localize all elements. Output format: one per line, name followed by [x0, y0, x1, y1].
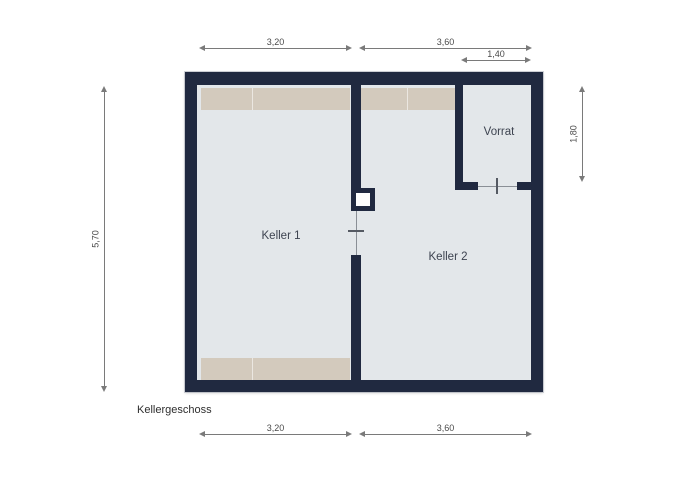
door-opening-keller — [351, 211, 361, 255]
shelf-divider — [252, 88, 253, 110]
dimension-line — [104, 91, 105, 387]
dimension-line — [466, 60, 526, 61]
dimension-left-height: 5,70 — [101, 86, 108, 392]
room-label-keller2: Keller 2 — [388, 251, 508, 264]
dimension-line — [364, 434, 527, 435]
dimension-value: 3,60 — [437, 38, 455, 47]
shelf-strip-top-keller1 — [201, 88, 350, 110]
door-tick-mark — [496, 178, 498, 194]
partition-wall-lower — [351, 255, 361, 392]
floor-title: Kellergeschoss — [137, 404, 212, 417]
dimension-value: 3,60 — [437, 424, 455, 433]
shelf-divider — [252, 358, 253, 380]
dimension-value: 5,70 — [92, 230, 101, 248]
door-opening-vorrat — [478, 182, 517, 190]
floor-plan-page: Keller 1 Keller 2 Vorrat 3,20 3,60 1,40 … — [0, 0, 680, 480]
shelf-divider — [407, 88, 408, 110]
dimension-bottom-keller1-width: 3,20 — [199, 431, 352, 438]
vorrat-wall-bottom-right — [517, 182, 531, 190]
shelf-strip-top-keller2 — [361, 88, 455, 110]
dimension-value: 3,20 — [267, 424, 285, 433]
door-leaf-line — [356, 211, 357, 255]
dimension-value: 1,40 — [487, 50, 505, 59]
dimension-top-keller1-width: 3,20 — [199, 45, 352, 52]
dimension-vorrat-height: 1,80 — [579, 86, 586, 182]
dimension-line — [582, 91, 583, 177]
vorrat-wall-bottom-left — [455, 182, 478, 190]
door-tick-mark — [348, 230, 364, 232]
shelf-strip-bottom-keller1 — [201, 358, 350, 380]
dimension-top-keller2-width: 3,60 — [359, 45, 532, 52]
dimension-bottom-keller2-width: 3,60 — [359, 431, 532, 438]
chimney-block — [351, 188, 375, 211]
dimension-value: 3,20 — [267, 38, 285, 47]
room-label-keller1: Keller 1 — [221, 230, 341, 243]
dimension-line — [204, 48, 347, 49]
room-label-vorrat: Vorrat — [459, 126, 539, 139]
dimension-line — [204, 434, 347, 435]
dimension-vorrat-width: 1,40 — [461, 57, 531, 64]
dimension-value: 1,80 — [570, 125, 579, 143]
